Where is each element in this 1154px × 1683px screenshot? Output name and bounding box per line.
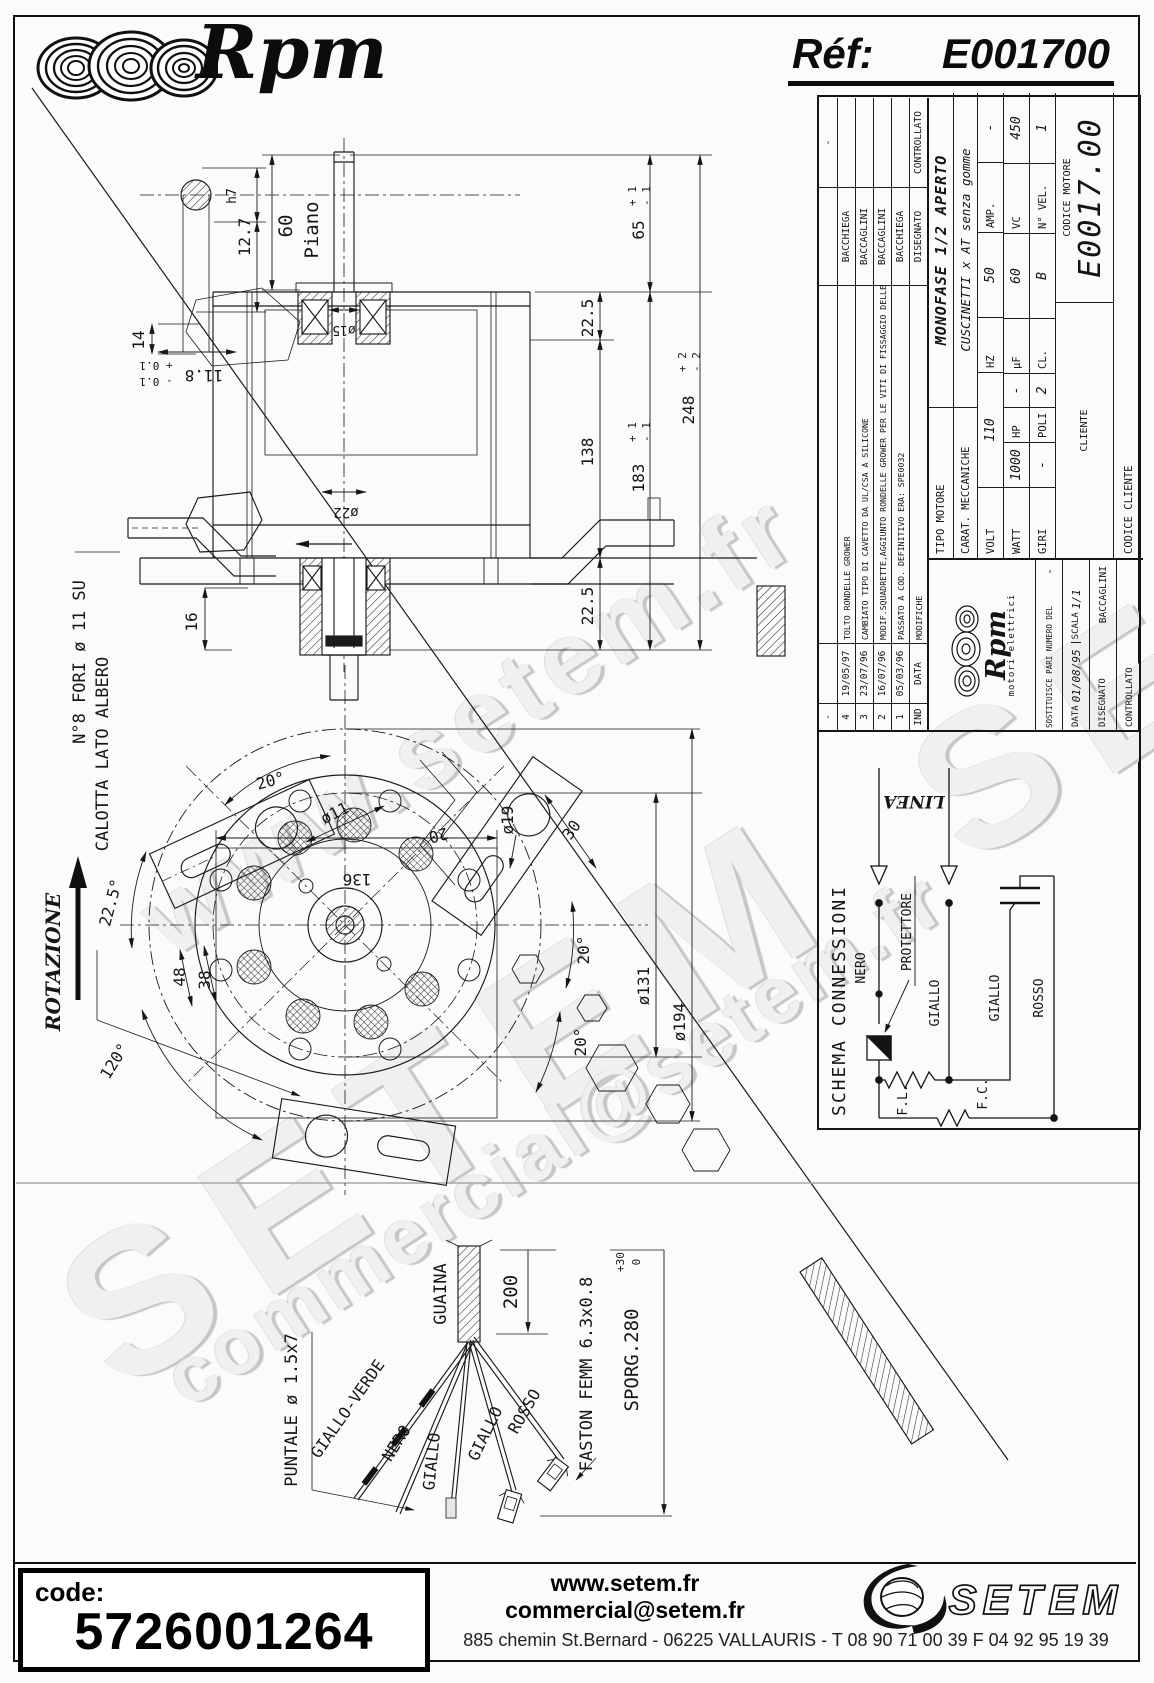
svg-text:ø131: ø131 [634,967,653,1006]
svg-text:30: 30 [558,817,585,844]
svg-text:PROTETTORE: PROTETTORE [900,893,915,971]
reference-title: Réf: E001700 [788,30,1114,86]
drawing-sheet: www.setem.fr SETEM commercial@setem.fr S… [0,0,1154,1683]
svg-text:ø15: ø15 [332,322,355,337]
svg-text:ROSSO: ROSSO [1032,978,1047,1017]
svg-text:22.5: 22.5 [578,299,597,338]
svg-text:GIALLO-VERDE: GIALLO-VERDE [307,1356,389,1462]
svg-text:FASTON FEMM 6.3x0.8: FASTON FEMM 6.3x0.8 [577,1277,597,1471]
svg-text:SPORG.280: SPORG.280 [621,1309,643,1412]
svg-text:22.5: 22.5 [578,587,597,626]
wiring-schematic: LINEA NERO PROTETTORE GIALLO GIALLO ROSS… [819,734,1137,1128]
svg-text:11.8: 11.8 [185,366,224,385]
svg-text:N°8 FORI ø 11 SU: N°8 FORI ø 11 SU [70,580,90,744]
svg-text:16: 16 [182,612,201,631]
svg-text:+ 0.1: + 0.1 [139,359,172,372]
svg-text:+ 1: + 1 [626,422,639,442]
title-block-admin: Rpm motori elettrici SOSTITUISCE PARI NU… [929,558,1143,730]
title-block: SCHEMA CONNESSIONI [817,95,1141,1130]
rpm-coils-icon [28,18,218,114]
revision-table: - - 4 19/05/97 TOLTO RONDELLE GROWER BAC… [819,98,929,730]
svg-text:ROTAZIONE: ROTAZIONE [41,892,65,1032]
svg-text:ø194: ø194 [670,1003,689,1042]
svg-text:PUNTALE ø 1.5x7: PUNTALE ø 1.5x7 [282,1333,302,1487]
setem-logo-text: SETEM [949,1576,1124,1623]
svg-text:+ 2: + 2 [676,352,689,372]
svg-text:65: 65 [629,220,648,239]
drawing-dimension-labels: 12.7 h7 11.8 + 0.1 - 0.1 60 Piano 14 16 … [41,186,703,1491]
rpm-logo-text: Rpm [196,10,388,96]
ref-label: Réf: [792,30,874,78]
code-box: code: 5726001264 [18,1568,430,1672]
svg-text:+30: +30 [614,1252,627,1272]
svg-text:20: 20 [427,824,451,847]
svg-text:60: 60 [275,215,297,238]
svg-text:48: 48 [170,967,189,986]
svg-text:ø19: ø19 [498,806,517,835]
svg-text:Piano: Piano [301,201,323,258]
svg-text:- 1: - 1 [640,422,653,442]
footer-contact: www.setem.fr commercial@setem.fr [430,1570,820,1624]
footer-site: www.setem.fr [430,1570,820,1597]
setem-swoosh-icon [864,1564,947,1634]
svg-text:20°: 20° [254,768,287,794]
code-value: 5726001264 [23,1602,425,1662]
svg-text:20°: 20° [574,936,593,965]
svg-text:12.7: 12.7 [235,218,254,257]
codice-motore-value: E0017.00 [1073,117,1108,278]
svg-text:183: 183 [629,464,648,493]
svg-text:GIALLO: GIALLO [988,974,1003,1021]
carat-value: CUSCINETTI x AT senza gomme [958,148,973,351]
tipo-motore-value: MONOFASE 1/2 APERTO [932,155,950,346]
svg-text:CALOTTA LATO ALBERO: CALOTTA LATO ALBERO [93,657,113,851]
schema-connessioni-box: SCHEMA CONNESSIONI [819,730,1139,1128]
svg-text:h7: h7 [225,188,240,204]
svg-text:248: 248 [679,396,698,425]
rpm-mini-logo: Rpm motori elettrici [929,560,1035,730]
svg-text:GIALLO: GIALLO [419,1432,444,1491]
svg-text:20°: 20° [571,1028,590,1057]
rev-ind: - [819,704,837,730]
svg-text:200: 200 [500,1275,522,1309]
svg-text:+ 1: + 1 [626,186,639,206]
svg-text:38: 38 [195,970,214,989]
svg-text:ø22: ø22 [333,504,358,520]
svg-text:138: 138 [578,438,597,467]
svg-text:136: 136 [343,870,372,889]
svg-text:NERO: NERO [378,1422,415,1465]
svg-text:F.L.: F.L. [896,1084,911,1115]
ref-value: E001700 [942,30,1110,78]
svg-text:- 0.1: - 0.1 [139,375,172,388]
svg-text:F.C.: F.C. [976,1078,991,1109]
svg-text:22.5°: 22.5° [95,877,126,928]
svg-text:- 2: - 2 [690,352,703,372]
setem-logo: SETEM [860,1564,1138,1634]
svg-text:14: 14 [129,330,148,349]
motor-spec-table: TIPO MOTORE MONOFASE 1/2 APERTO CARAT. M… [929,93,1143,558]
cliente-label: CLIENTE [1079,409,1090,451]
footer-email: commercial@setem.fr [430,1597,820,1624]
svg-text:GUAINA: GUAINA [431,1263,451,1324]
svg-text:GIALLO: GIALLO [928,979,943,1026]
svg-text:NERO: NERO [854,952,869,983]
svg-text:120°: 120° [96,1040,133,1083]
svg-text:- 1: - 1 [640,186,653,206]
svg-text:LINEA: LINEA [883,791,946,811]
codice-motore-label: CODICE MOTORE [1062,158,1073,236]
svg-text:0: 0 [630,1259,643,1266]
